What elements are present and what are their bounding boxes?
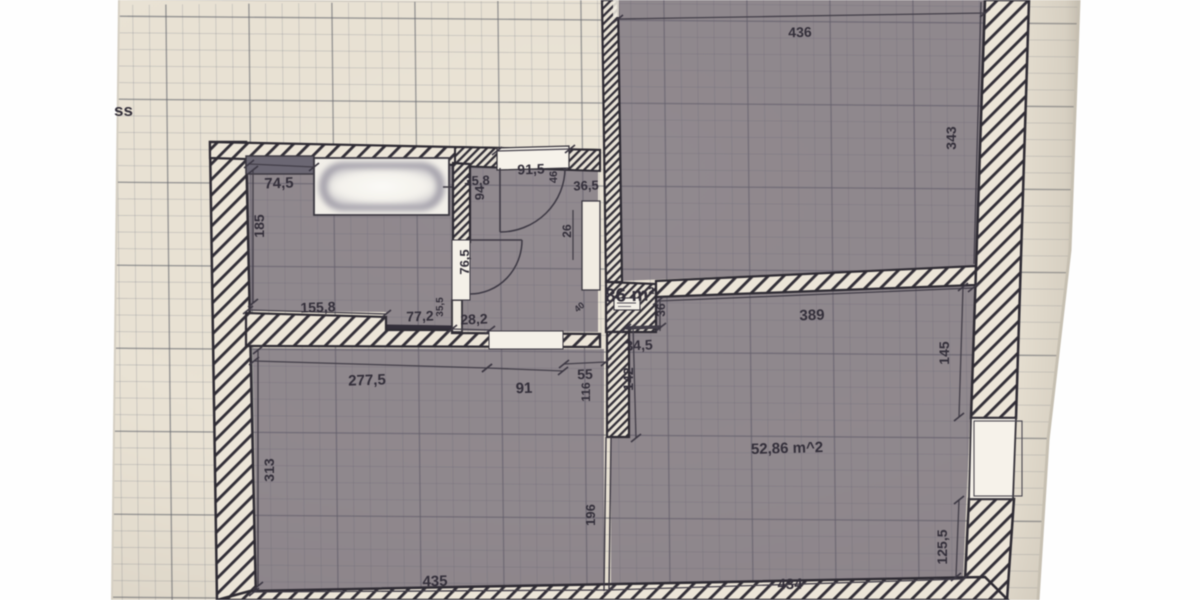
svg-text:46: 46: [548, 171, 560, 183]
svg-text:86 m²: 86 m²: [605, 284, 655, 307]
svg-text:277,5: 277,5: [348, 371, 386, 389]
svg-text:34,5: 34,5: [625, 336, 653, 353]
svg-text:52,86 m^2: 52,86 m^2: [751, 439, 824, 458]
svg-text:36: 36: [654, 303, 668, 317]
svg-text:94: 94: [472, 185, 487, 200]
svg-text:313: 313: [261, 458, 277, 482]
svg-text:91: 91: [515, 380, 532, 398]
svg-text:155,8: 155,8: [300, 298, 336, 315]
svg-text:125,5: 125,5: [934, 529, 950, 564]
svg-text:55: 55: [577, 366, 593, 383]
svg-text:26: 26: [560, 224, 574, 238]
svg-text:343: 343: [943, 126, 959, 150]
svg-text:434: 434: [777, 576, 803, 593]
svg-text:35,5: 35,5: [435, 297, 446, 317]
svg-text:389: 389: [799, 307, 825, 325]
svg-text:ss: ss: [114, 101, 133, 120]
svg-text:76,5: 76,5: [457, 249, 472, 274]
svg-text:91,5: 91,5: [517, 161, 545, 178]
svg-text:435: 435: [422, 573, 447, 590]
svg-text:28,2: 28,2: [460, 311, 488, 328]
svg-text:145: 145: [936, 341, 952, 365]
svg-text:142: 142: [620, 367, 636, 391]
svg-text:77,2: 77,2: [406, 308, 434, 325]
svg-text:196: 196: [583, 504, 598, 526]
svg-text:436: 436: [788, 24, 812, 41]
svg-text:185: 185: [251, 214, 267, 238]
svg-text:116: 116: [579, 382, 593, 402]
svg-text:36,5: 36,5: [573, 178, 599, 194]
svg-text:74,5: 74,5: [264, 174, 294, 192]
